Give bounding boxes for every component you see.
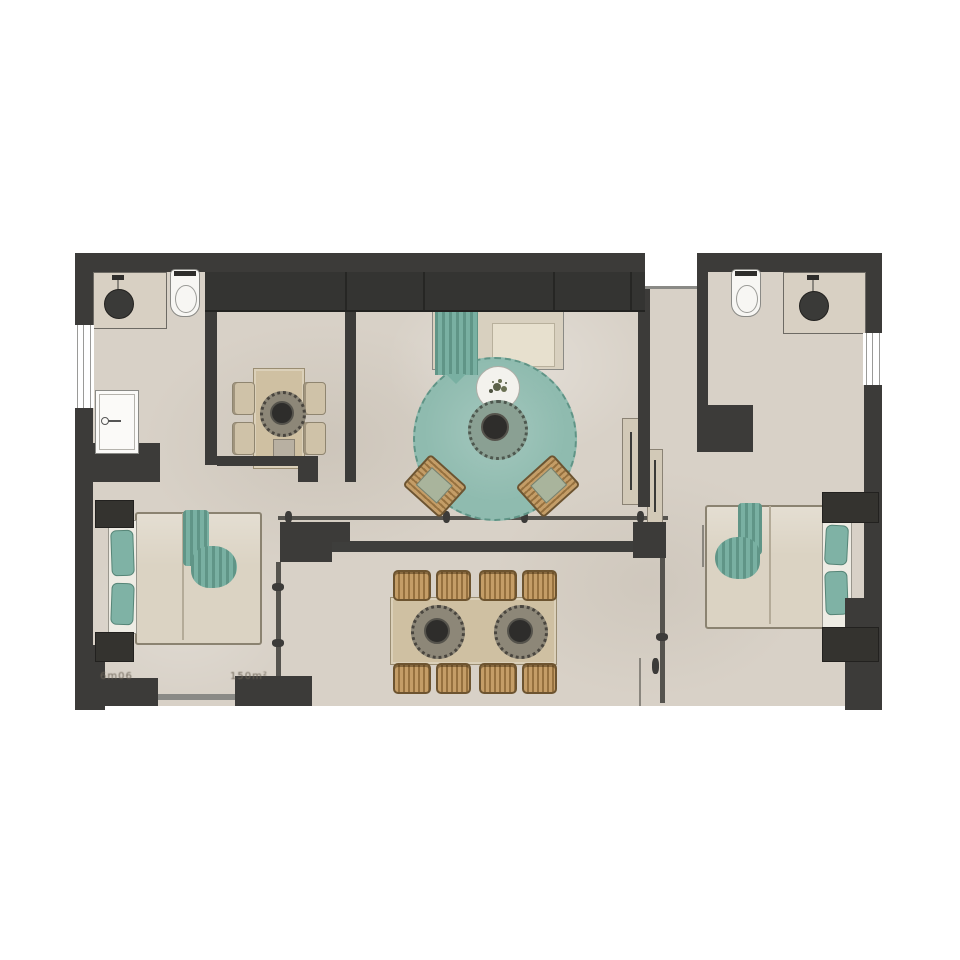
entry-threshold xyxy=(645,286,697,289)
pillow xyxy=(110,530,135,577)
railing-finial xyxy=(652,658,659,674)
window-frame xyxy=(90,325,91,408)
dining-chair xyxy=(479,663,517,694)
floor-plan-image: 6m06 150m² xyxy=(0,0,960,960)
terrace-divider-line xyxy=(639,658,641,706)
window-frame xyxy=(879,333,880,385)
closet-seam xyxy=(423,272,425,310)
centerpiece-core xyxy=(424,618,450,644)
window-frame xyxy=(77,325,78,408)
threshold xyxy=(158,694,235,700)
armchair-cushion xyxy=(530,467,567,504)
window-frame xyxy=(866,333,867,385)
nightstand xyxy=(822,627,879,662)
pergola-beam xyxy=(318,541,658,552)
dining-chair xyxy=(393,663,431,694)
closet-seam xyxy=(345,272,347,310)
window-frame xyxy=(872,333,873,385)
kitchen-chair xyxy=(232,422,255,455)
terrace-railing-right xyxy=(660,558,665,703)
kitchen-centerpiece-core xyxy=(270,401,294,425)
dimension-label-left: 6m06 xyxy=(100,671,133,682)
closet-row xyxy=(205,272,645,312)
plant xyxy=(493,383,501,391)
bed-throw-right xyxy=(715,537,760,579)
wall-line xyxy=(702,525,704,567)
railing-finial xyxy=(272,583,284,591)
dining-chair xyxy=(436,570,471,601)
entry-opening xyxy=(645,251,697,288)
sink xyxy=(104,289,134,319)
dining-chair xyxy=(393,570,431,601)
coffee-table-center xyxy=(481,413,509,441)
sofa-throw xyxy=(435,302,478,375)
kitchen-chair xyxy=(303,382,326,415)
door-handle xyxy=(630,432,632,490)
bottom-wall-segment xyxy=(105,678,158,706)
dining-chair xyxy=(522,570,557,601)
bed-throw-left xyxy=(191,546,237,588)
wall-post xyxy=(298,456,318,482)
closet-seam xyxy=(630,272,632,310)
pillow xyxy=(110,583,134,626)
window-frame xyxy=(83,325,84,408)
shower-handle-icon xyxy=(108,420,121,422)
armchair-cushion xyxy=(416,467,453,504)
throw-fringe xyxy=(446,374,466,384)
railing-finial xyxy=(656,633,668,641)
nightstand xyxy=(95,500,134,528)
kitchen-wall-bottom xyxy=(217,456,310,466)
nightstand xyxy=(95,632,134,662)
dining-chair xyxy=(522,663,557,694)
dining-chair xyxy=(436,663,471,694)
pergola-post-step xyxy=(332,522,350,542)
pillow xyxy=(824,524,849,565)
nightstand xyxy=(822,492,879,523)
outer-wall-left xyxy=(75,253,93,710)
toilet xyxy=(170,269,200,317)
door-handle xyxy=(654,460,656,512)
bathroom-right-wall xyxy=(697,405,753,452)
dimension-label-right: 150m² xyxy=(230,671,268,682)
railing-finial xyxy=(272,639,284,647)
sink xyxy=(799,291,829,321)
pergola-post-right xyxy=(633,522,666,558)
closet-seam xyxy=(553,272,555,310)
dining-chair xyxy=(479,570,517,601)
bed-fold-line xyxy=(769,506,771,624)
kitchen-chair xyxy=(303,422,326,455)
kitchen-chair xyxy=(232,382,255,415)
corridor-wall-left xyxy=(638,288,650,507)
pergola-post-left xyxy=(280,522,332,562)
toilet xyxy=(731,269,761,317)
centerpiece-core xyxy=(507,618,533,644)
floor-plan: 6m06 150m² xyxy=(75,253,882,710)
